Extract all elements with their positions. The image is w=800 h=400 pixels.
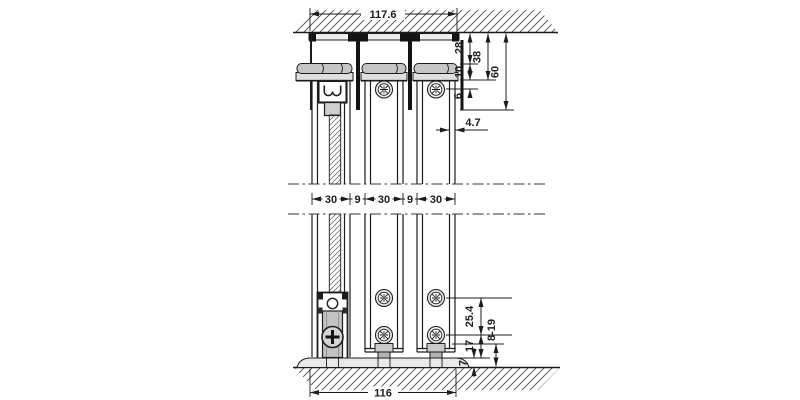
hanger-bracket-2 [400,34,420,42]
door-3-top-screw [428,81,445,98]
track-end-right [452,34,459,42]
dim-label-top-width: 117.6 [370,9,397,21]
dim-label-10: 10 [454,66,466,78]
hanger-pin-1 [356,41,360,110]
door-3-bottom-screws [428,290,445,344]
dim-label-bottom-width: 116 [374,388,392,400]
dim-door-spacing: 30 9 30 9 30 [312,193,455,206]
door-top-caps [296,64,458,81]
door-3 [417,81,455,366]
dim-label-door2-width: 30 [378,194,390,206]
dims-top-right: 28 10 6 38 60 [446,34,514,111]
screw-cross-icon [380,85,388,93]
floor-hatch [294,368,560,391]
dim-label-28: 28 [454,42,466,54]
glass-panel-upper [329,115,340,184]
floor-section [293,368,560,391]
glass-clamp [325,103,341,116]
hanger-pin-2 [408,41,412,110]
dim-label-door1-width: 30 [325,194,337,206]
ceiling-hatch [293,10,558,33]
glass-panel-lower [329,214,340,292]
dim-label-8-19: 8-19 [486,319,498,341]
ceiling-section [293,10,558,33]
bottom-roller-assembly [318,293,348,367]
hanger-bracket-1 [348,34,368,42]
dim-label-7: 7 [458,360,470,366]
dim-label-gap2: 9 [407,194,413,206]
adjustment-hole-icon [327,298,337,308]
technical-drawing-canvas: 117.6 [0,0,800,400]
dim-label-6: 6 [453,93,465,99]
dim-label-gap1: 9 [354,194,360,206]
dim-label-door3-width: 30 [430,194,442,206]
floor-track [297,358,469,368]
door-1-glass [312,81,350,367]
section-drawing: 117.6 [0,0,800,400]
dim-wall-thickness: 4.7 [436,117,488,130]
dim-label-60: 60 [490,66,502,78]
dim-label-4-7: 4.7 [465,117,480,129]
door-2 [365,81,403,366]
door-2-bottom-screws [376,290,393,344]
track-plate [309,34,459,41]
dim-label-38: 38 [472,51,484,63]
dim-label-17: 17 [464,340,476,352]
door-2-top-screw [376,81,393,98]
dim-label-25-4: 25.4 [464,305,476,327]
